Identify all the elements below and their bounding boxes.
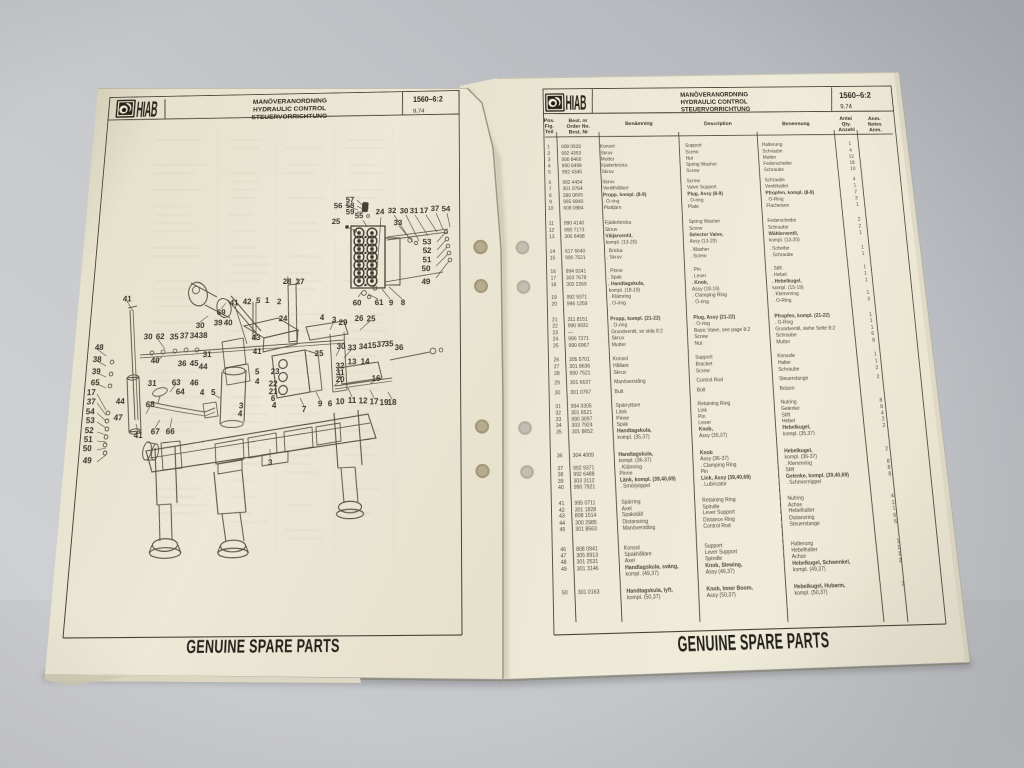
svg-text:6: 6	[328, 398, 333, 409]
svg-text:5: 5	[255, 366, 260, 376]
svg-text:1: 1	[866, 290, 870, 295]
svg-text:990 7271: 990 7271	[568, 336, 589, 342]
svg-text:44: 44	[198, 361, 207, 372]
svg-text:Control Rod: Control Rod	[696, 377, 723, 383]
svg-text:2: 2	[876, 374, 880, 380]
svg-text:23: 23	[270, 366, 279, 377]
svg-text:996 1259: 996 1259	[567, 301, 588, 307]
svg-text:Support: Support	[695, 354, 713, 360]
svg-text:Väljarventil,: Väljarventil,	[605, 233, 632, 239]
svg-text:304 4009: 304 4009	[573, 452, 595, 458]
svg-text:Plate: Plate	[688, 204, 700, 209]
svg-text:4: 4	[200, 387, 205, 398]
svg-text:kompl. (35,37): kompl. (35,37)	[783, 430, 816, 436]
svg-text:4: 4	[891, 493, 895, 499]
svg-text:4: 4	[853, 176, 856, 181]
svg-text:10: 10	[335, 396, 344, 407]
svg-text:Assy (13-20): Assy (13-20)	[689, 238, 717, 244]
svg-text:49: 49	[422, 276, 431, 286]
svg-text:kompl. (15-19): kompl. (15-19)	[772, 284, 804, 290]
svg-text:Retaining Ring: Retaining Ring	[697, 400, 730, 406]
svg-text:Screw: Screw	[696, 368, 711, 374]
svg-text:303 3112: 303 3112	[573, 477, 595, 483]
svg-text:1: 1	[869, 311, 873, 316]
svg-text:. O-ring: . O-ring	[611, 322, 628, 328]
svg-text:990 7921: 990 7921	[574, 484, 596, 490]
svg-text:50: 50	[422, 263, 431, 273]
svg-text:14: 14	[361, 356, 370, 367]
svg-text:Skruv: Skruv	[611, 335, 625, 341]
svg-text:Selector Valve,: Selector Valve,	[689, 231, 723, 237]
svg-text:8: 8	[872, 337, 876, 343]
svg-text:54: 54	[442, 204, 451, 214]
svg-text:. O-ring: . O-ring	[609, 300, 626, 306]
svg-text:11: 11	[348, 395, 357, 406]
svg-text:20: 20	[336, 374, 345, 385]
svg-text:Hebelkugel,: Hebelkugel,	[782, 424, 810, 430]
svg-text:Pin: Pin	[701, 468, 709, 474]
svg-text:33: 33	[394, 218, 403, 228]
svg-text:34: 34	[189, 330, 198, 340]
svg-text:301 6521: 301 6521	[571, 409, 593, 415]
svg-text:3: 3	[268, 457, 273, 468]
svg-text:Hebel: Hebel	[782, 418, 795, 424]
svg-text:HIAB: HIAB	[135, 98, 159, 123]
svg-text:Schraube: Schraube	[764, 177, 785, 182]
svg-text:61: 61	[375, 297, 384, 307]
svg-text:Control Rod: Control Rod	[703, 522, 731, 529]
svg-text:50: 50	[82, 443, 92, 454]
svg-text:Spring Washer: Spring Washer	[689, 219, 721, 225]
svg-text:Achse: Achse	[792, 553, 807, 559]
svg-text:2: 2	[277, 296, 282, 306]
svg-text:Lever: Lever	[698, 419, 711, 425]
svg-text:kompl. (35,37): kompl. (35,37)	[617, 434, 650, 440]
svg-text:HYDRAULIC CONTROL: HYDRAULIC CONTROL	[680, 99, 748, 106]
svg-text:2: 2	[858, 217, 862, 222]
svg-text:kompl. (36-37): kompl. (36-37)	[784, 453, 817, 460]
svg-text:25: 25	[315, 348, 324, 358]
svg-text:301 9764: 301 9764	[563, 186, 584, 191]
svg-text:2: 2	[901, 580, 905, 586]
svg-text:GENUINE SPARE PARTS: GENUINE SPARE PARTS	[677, 629, 830, 658]
svg-text:41: 41	[559, 500, 565, 506]
svg-text:808 1514: 808 1514	[575, 512, 597, 519]
svg-text:36: 36	[177, 358, 186, 368]
svg-text:41: 41	[123, 293, 132, 303]
svg-text:1: 1	[547, 144, 550, 149]
svg-text:7: 7	[549, 186, 552, 191]
svg-text:1: 1	[862, 251, 866, 256]
svg-text:30: 30	[196, 320, 205, 330]
svg-text:Nutring: Nutring	[780, 399, 797, 405]
svg-text:30: 30	[400, 206, 409, 216]
svg-text:4: 4	[548, 163, 551, 168]
svg-text:301 8652: 301 8652	[572, 428, 594, 434]
svg-text:Länk: Länk	[616, 409, 628, 415]
svg-text:. Clamping Ring: . Clamping Ring	[692, 292, 727, 298]
svg-text:2: 2	[882, 416, 886, 422]
svg-text:Schraube: Schraube	[762, 148, 783, 153]
svg-text:3: 3	[548, 157, 551, 162]
svg-text:24: 24	[279, 313, 288, 323]
svg-text:41: 41	[133, 430, 143, 441]
svg-text:18: 18	[387, 397, 396, 408]
svg-text:67: 67	[150, 426, 160, 437]
svg-text:Konsol: Konsol	[613, 355, 628, 361]
svg-text:18: 18	[849, 160, 855, 165]
svg-text:. Spak: . Spak	[608, 274, 623, 280]
svg-text:301 8563: 301 8563	[575, 526, 597, 533]
svg-text:Link: Link	[698, 407, 708, 413]
svg-text:4: 4	[255, 376, 260, 387]
svg-text:Assy (18-19): Assy (18-19)	[692, 286, 720, 292]
svg-text:. Washer: . Washer	[690, 247, 710, 253]
svg-text:40: 40	[150, 355, 160, 365]
svg-text:8: 8	[549, 193, 552, 198]
svg-text:2: 2	[875, 365, 879, 371]
svg-text:33: 33	[556, 417, 562, 423]
svg-text:68: 68	[145, 399, 155, 410]
svg-text:Spindle: Spindle	[705, 555, 723, 562]
svg-text:Halter: Halter	[778, 359, 792, 365]
svg-text:Pinne: Pinne	[619, 470, 633, 476]
svg-text:995 0840: 995 0840	[563, 199, 584, 204]
svg-text:Mutter: Mutter	[612, 341, 627, 347]
svg-text:2: 2	[885, 445, 889, 451]
svg-text:6: 6	[548, 180, 551, 185]
svg-text:GENUINE SPARE PARTS: GENUINE SPARE PARTS	[186, 635, 340, 657]
svg-text:59: 59	[346, 207, 355, 217]
svg-text:Hållare: Hållare	[613, 361, 629, 368]
svg-text:30: 30	[555, 390, 561, 396]
svg-text:. Schmiernippel: . Schmiernippel	[786, 479, 821, 486]
svg-text:Description: Description	[704, 121, 732, 127]
svg-text:Skruv: Skruv	[602, 179, 615, 184]
svg-text:608 0933: 608 0933	[561, 144, 581, 149]
svg-text:Benennung: Benennung	[782, 121, 810, 127]
svg-text:43: 43	[559, 513, 565, 519]
svg-text:Federscheibe: Federscheibe	[767, 218, 797, 224]
svg-text:31: 31	[202, 349, 211, 359]
svg-text:992 6488: 992 6488	[573, 471, 595, 477]
svg-text:Spärring: Spärring	[621, 499, 641, 505]
svg-text:. Scheibe: . Scheibe	[769, 245, 790, 251]
svg-text:4: 4	[849, 147, 852, 152]
svg-text:3: 3	[867, 296, 871, 301]
svg-text:Knob,: Knob,	[699, 426, 714, 432]
svg-text:992 4434: 992 4434	[562, 179, 583, 184]
svg-text:305 5701: 305 5701	[569, 356, 590, 362]
svg-text:Wählerventil,: Wählerventil,	[768, 230, 798, 236]
svg-text:2: 2	[547, 151, 550, 156]
svg-text:62: 62	[155, 331, 164, 341]
svg-text:Benämning: Benämning	[625, 121, 653, 127]
svg-text:. Screw: . Screw	[690, 253, 707, 259]
svg-text:25: 25	[553, 343, 559, 349]
svg-text:Spak: Spak	[617, 421, 629, 427]
svg-text:1: 1	[853, 183, 856, 188]
svg-text:STEUERVORRICHTUNG: STEUERVORRICHTUNG	[251, 113, 327, 122]
svg-text:. O-Ring: . O-Ring	[766, 196, 784, 201]
svg-text:21: 21	[552, 317, 558, 323]
svg-text:69: 69	[217, 307, 226, 317]
svg-text:9,74: 9,74	[840, 104, 853, 110]
svg-text:5: 5	[548, 169, 551, 174]
svg-text:. Schraube: . Schraube	[770, 252, 794, 258]
svg-text:16: 16	[550, 269, 556, 274]
svg-text:39: 39	[91, 366, 101, 377]
svg-text:10: 10	[850, 166, 856, 171]
svg-text:17: 17	[551, 275, 557, 280]
svg-text:Basic Valve, see page 8:2: Basic Valve, see page 8:2	[694, 326, 751, 332]
svg-text:Propp, kompl. (21-22): Propp, kompl. (21-22)	[610, 315, 661, 321]
svg-text:39: 39	[558, 478, 564, 484]
svg-text:8: 8	[401, 297, 405, 307]
svg-text:1: 1	[848, 141, 851, 146]
svg-text:Konsol: Konsol	[600, 144, 615, 149]
svg-text:Propp, kompl. (8-9): Propp, kompl. (8-9)	[603, 192, 647, 198]
svg-text:992 9371: 992 9371	[567, 294, 588, 300]
svg-text:301 0767: 301 0767	[570, 389, 592, 395]
svg-text:3: 3	[855, 195, 858, 200]
svg-text:990 7173: 990 7173	[564, 227, 585, 233]
svg-text:Spärryttare: Spärryttare	[615, 402, 640, 408]
svg-text:39: 39	[213, 317, 222, 327]
svg-text:Skruv: Skruv	[605, 226, 618, 231]
svg-text:14: 14	[550, 249, 556, 254]
svg-text:33: 33	[348, 342, 357, 352]
svg-text:kompl. (13-20): kompl. (13-20)	[606, 239, 638, 245]
svg-text:Halterung: Halterung	[762, 142, 783, 147]
svg-text:46: 46	[560, 546, 566, 552]
svg-text:7: 7	[854, 189, 857, 194]
svg-text:32: 32	[555, 410, 561, 416]
svg-text:12: 12	[358, 395, 367, 406]
svg-text:Skruv: Skruv	[602, 169, 615, 174]
svg-text:19: 19	[551, 295, 557, 301]
svg-text:Anzahl: Anzahl	[838, 127, 855, 133]
svg-text:48: 48	[561, 559, 567, 565]
svg-text:37: 37	[180, 330, 189, 340]
svg-text:Plattjärn: Plattjärn	[604, 205, 622, 210]
svg-text:26: 26	[355, 313, 364, 323]
svg-text:8: 8	[880, 404, 884, 410]
svg-text:Axel: Axel	[625, 557, 635, 563]
svg-text:. Klämring: . Klämring	[609, 294, 632, 300]
svg-text:13: 13	[347, 356, 356, 367]
svg-text:Screw: Screw	[694, 334, 709, 340]
svg-text:16: 16	[371, 373, 380, 384]
svg-text:. Clamping Ring: . Clamping Ring	[700, 462, 737, 469]
svg-text:27: 27	[554, 364, 560, 370]
svg-text:995 0711: 995 0711	[574, 500, 596, 506]
svg-text:Ventilhållare: Ventilhållare	[603, 184, 630, 191]
svg-text:31: 31	[147, 378, 157, 389]
svg-text:301 2531: 301 2531	[576, 558, 598, 565]
svg-text:1: 1	[861, 244, 865, 249]
svg-text:994 9241: 994 9241	[566, 268, 587, 274]
svg-text:8: 8	[887, 464, 891, 470]
svg-text:43: 43	[251, 332, 260, 342]
svg-text:Retaining Ring: Retaining Ring	[702, 496, 736, 503]
svg-text:306 8498: 306 8498	[564, 233, 585, 239]
svg-text:kompl. (18-19): kompl. (18-19)	[609, 287, 641, 293]
svg-text:990 8498: 990 8498	[562, 163, 582, 168]
svg-text:301 0163: 301 0163	[578, 588, 600, 595]
svg-text:Bolzen: Bolzen	[779, 385, 795, 391]
svg-text:Nut: Nut	[694, 340, 703, 346]
svg-text:1: 1	[864, 270, 868, 275]
svg-text:301 3146: 301 3146	[577, 565, 599, 572]
svg-text:Stift: Stift	[785, 466, 795, 472]
svg-text:38: 38	[198, 330, 207, 340]
svg-text:8: 8	[888, 471, 892, 477]
svg-text:. O-ring: . O-ring	[693, 321, 710, 327]
svg-text:12: 12	[549, 227, 555, 232]
svg-text:Grundventil, siehe Seite 8:2: Grundventil, siehe Seite 8:2	[775, 325, 836, 332]
svg-text:. O-Ring: . O-Ring	[773, 297, 792, 303]
svg-text:40: 40	[224, 317, 233, 327]
svg-text:. Lubricator: . Lubricator	[701, 481, 727, 487]
svg-text:Screw: Screw	[687, 178, 701, 183]
svg-text:25: 25	[367, 313, 376, 323]
svg-text:38: 38	[92, 354, 102, 364]
svg-text:311 8151: 311 8151	[567, 316, 588, 322]
svg-text:Teil: Teil	[545, 129, 554, 135]
svg-text:. Klemmring: . Klemmring	[785, 460, 813, 466]
svg-text:STEUERVORRICHTUNG: STEUERVORRICHTUNG	[681, 107, 751, 114]
svg-text:. O-ring: . O-ring	[692, 299, 709, 305]
svg-text:56: 56	[334, 201, 343, 211]
svg-text:Plug, Assy (8-9): Plug, Assy (8-9)	[687, 191, 723, 197]
svg-text:—: —	[568, 329, 573, 335]
svg-text:4: 4	[238, 408, 243, 419]
svg-text:27: 27	[296, 276, 305, 286]
svg-text:Hebelhalter: Hebelhalter	[788, 507, 815, 514]
svg-text:1: 1	[265, 295, 270, 305]
svg-text:20: 20	[551, 301, 557, 307]
svg-text:1: 1	[856, 202, 860, 207]
svg-text:31: 31	[410, 206, 419, 216]
svg-text:Skruv: Skruv	[613, 369, 627, 375]
svg-text:2: 2	[858, 223, 862, 228]
svg-text:kompl. (49,37): kompl. (49,37)	[625, 570, 659, 577]
svg-text:992 4353: 992 4353	[561, 150, 581, 155]
svg-text:Hebelkugel,: Hebelkugel,	[784, 447, 813, 453]
svg-text:Handtagskula,: Handtagskula,	[617, 427, 652, 433]
svg-text:35: 35	[385, 338, 394, 348]
svg-text:Grundventil, se sida 8:2: Grundventil, se sida 8:2	[611, 328, 663, 334]
svg-text:1: 1	[859, 229, 863, 234]
svg-text:3: 3	[332, 314, 337, 324]
svg-text:. Knob,: . Knob,	[691, 279, 708, 285]
svg-text:29: 29	[339, 317, 348, 327]
svg-text:24: 24	[553, 336, 559, 342]
svg-text:41: 41	[252, 346, 261, 356]
svg-text:8: 8	[879, 397, 883, 403]
svg-text:4: 4	[320, 312, 325, 322]
svg-text:Bolt: Bolt	[697, 387, 707, 393]
svg-text:994 9305: 994 9305	[571, 403, 593, 409]
svg-text:Support: Support	[685, 143, 702, 148]
svg-text:Mutter: Mutter	[763, 154, 777, 159]
svg-text:. Lever: . Lever	[691, 273, 707, 279]
svg-text:13: 13	[549, 234, 555, 239]
svg-text:. Hebel: . Hebel	[771, 272, 787, 278]
svg-text:. Smörjnippel: . Smörjnippel	[620, 482, 650, 489]
svg-text:Manöverstång: Manöverstång	[614, 377, 646, 384]
svg-text:Schraube: Schraube	[768, 224, 789, 230]
svg-text:Konsole: Konsole	[777, 352, 796, 358]
svg-text:55: 55	[355, 211, 364, 221]
svg-text:Federscheibe: Federscheibe	[763, 160, 792, 165]
svg-text:6: 6	[871, 331, 875, 337]
svg-text:1560–6:2: 1560–6:2	[839, 91, 872, 101]
svg-text:34: 34	[556, 423, 562, 429]
svg-text:Knob: Knob	[700, 449, 713, 455]
svg-text:26: 26	[553, 357, 559, 363]
svg-text:992 4345: 992 4345	[562, 169, 582, 174]
svg-text:47: 47	[113, 412, 123, 423]
svg-text:Flacheisen: Flacheisen	[766, 203, 790, 208]
svg-text:28: 28	[554, 371, 560, 377]
svg-text:kompl. (50,37): kompl. (50,37)	[794, 589, 828, 596]
svg-text:. Hebelkugel,: . Hebelkugel,	[772, 278, 802, 284]
svg-text:. O-Ring: . O-Ring	[775, 319, 794, 325]
svg-text:Pin: Pin	[698, 414, 706, 420]
svg-text:50: 50	[562, 589, 568, 595]
svg-text:303 7924: 303 7924	[571, 422, 593, 428]
svg-text:44: 44	[559, 520, 565, 526]
svg-text:Anm.: Anm.	[869, 127, 883, 133]
svg-text:Assy (49,37): Assy (49,37)	[705, 568, 735, 575]
svg-text:41: 41	[230, 297, 239, 307]
svg-text:9,74: 9,74	[413, 108, 425, 114]
svg-text:301 8636: 301 8636	[569, 363, 590, 369]
svg-text:12: 12	[849, 154, 855, 159]
svg-text:46: 46	[189, 377, 198, 388]
svg-text:302 2269: 302 2269	[566, 281, 587, 287]
svg-text:1: 1	[870, 318, 874, 324]
svg-text:1: 1	[865, 277, 869, 282]
svg-text:Screw: Screw	[685, 149, 699, 154]
svg-text:37: 37	[431, 204, 440, 214]
svg-text:. Pinne: . Pinne	[607, 268, 623, 274]
svg-text:1: 1	[870, 324, 874, 330]
svg-text:44: 44	[115, 396, 125, 407]
svg-text:4: 4	[881, 410, 885, 416]
svg-text:34: 34	[359, 341, 368, 351]
svg-text:42: 42	[243, 296, 252, 306]
svg-text:kompl. (36-37): kompl. (36-37)	[619, 457, 652, 464]
svg-text:Fjäderbricka: Fjäderbricka	[605, 220, 632, 226]
svg-text:66: 66	[165, 426, 175, 437]
svg-text:35: 35	[556, 429, 562, 435]
svg-text:Assy (35,37): Assy (35,37)	[699, 432, 728, 438]
svg-text:kompl. (50,37): kompl. (50,37)	[627, 593, 661, 600]
svg-text:15: 15	[368, 340, 377, 350]
svg-text:45: 45	[560, 526, 566, 532]
svg-text:31: 31	[555, 404, 561, 410]
svg-text:990 7521: 990 7521	[565, 255, 586, 261]
svg-text:38: 38	[558, 471, 564, 477]
svg-text:Screw: Screw	[686, 168, 700, 173]
svg-text:Assy (50,37): Assy (50,37)	[707, 591, 737, 598]
svg-text:Lever Support: Lever Support	[703, 509, 736, 516]
svg-text:Assy (36-37): Assy (36-37)	[700, 455, 729, 461]
svg-text:48: 48	[94, 342, 104, 352]
